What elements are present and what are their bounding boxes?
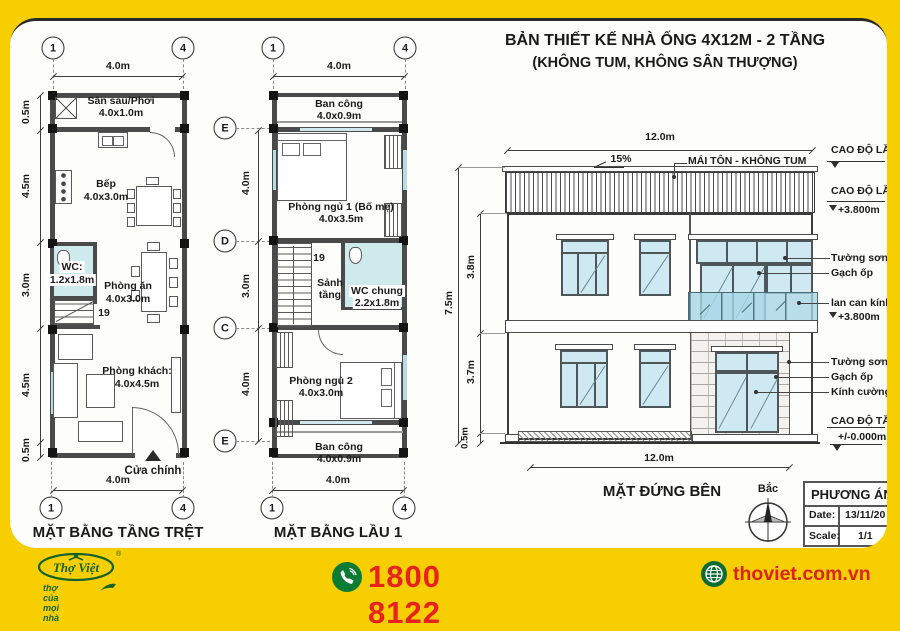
- extension-line: [480, 213, 507, 214]
- scale-value: 1/1: [858, 530, 873, 542]
- window-mullion: [790, 266, 792, 292]
- room-name: Sân sau/Phơi: [88, 95, 155, 107]
- roof-callout: MÁI TÔN - KHÔNG TUM: [688, 155, 806, 167]
- dimension-label: 3.8m: [465, 255, 477, 279]
- column: [48, 124, 57, 133]
- plan-title: MẶT BẰNG LẦU 1: [274, 527, 402, 539]
- leader-line: [786, 258, 830, 259]
- room-size: 4.0x3.0m: [299, 387, 343, 399]
- column: [48, 448, 57, 457]
- room-name: Ban công: [315, 441, 363, 453]
- level-label: CAO ĐỘ TẦNG TRỆT: [831, 415, 900, 427]
- material-callout: Kính cường lực: [831, 386, 900, 398]
- dimension-label: 4.5m: [20, 174, 32, 198]
- level-value: +3.800m: [838, 311, 880, 323]
- chair: [146, 177, 159, 185]
- dimension-line: [507, 150, 813, 151]
- chair: [147, 242, 160, 251]
- window-mullion: [576, 363, 578, 406]
- extension-line: [480, 433, 505, 434]
- material-callout: Gạch ốp: [831, 267, 873, 279]
- dimension-label: 4.0m: [327, 60, 351, 72]
- column: [269, 448, 278, 457]
- column: [399, 91, 408, 100]
- room-name: Sảnh tầng: [311, 277, 349, 301]
- window-mullion: [595, 253, 597, 295]
- dimension-line: [40, 95, 41, 458]
- title-block-line: [803, 525, 900, 527]
- toilet: [349, 247, 362, 264]
- level-symbol: [829, 205, 837, 211]
- chair: [169, 258, 178, 269]
- brand-tagline: thợ của mọi nhà: [43, 583, 59, 623]
- date-value: 13/11/20: [845, 509, 885, 521]
- chair: [131, 266, 140, 277]
- base-step: [505, 434, 519, 442]
- column: [48, 325, 57, 334]
- window: [639, 350, 671, 408]
- column: [399, 448, 408, 457]
- kitchen-sink: [98, 132, 128, 148]
- dimension-label: 3.7m: [465, 360, 477, 384]
- room-name: WC chung: [349, 285, 405, 297]
- wall: [93, 242, 97, 304]
- balcony-rail-line: [276, 431, 403, 433]
- dimension-line: [258, 130, 259, 442]
- column: [180, 239, 189, 248]
- bed: [340, 362, 402, 419]
- dimension-label: 0.5m: [20, 100, 32, 124]
- title-block-line: [803, 505, 900, 507]
- elevation-title: MẶT ĐỨNG BÊN: [603, 486, 721, 498]
- extension-line: [480, 333, 505, 334]
- leader-line: [674, 163, 687, 164]
- window-mullion: [562, 252, 608, 254]
- stair-count-label: 19: [313, 252, 325, 264]
- sheet-title-line2: (KHÔNG TUM, KHÔNG SÂN THƯỢNG): [532, 57, 797, 69]
- grid-line: [236, 328, 270, 329]
- dimension-line: [53, 490, 183, 491]
- leader-line: [757, 392, 829, 393]
- chair: [169, 277, 178, 288]
- corrugated-roof: [505, 172, 815, 213]
- grid-bubble: 4: [393, 497, 416, 520]
- window: [561, 240, 609, 296]
- level-label: CAO ĐỘ LẦU 2: [831, 144, 900, 156]
- level-value: +3.800m: [838, 204, 880, 216]
- date-label: Date:: [809, 509, 835, 521]
- grid-bubble: 1: [40, 497, 63, 520]
- wardrobe: [384, 135, 402, 169]
- column: [399, 418, 408, 427]
- room-name: WC:: [60, 261, 85, 273]
- grid-bubble: E: [214, 430, 237, 453]
- grid-bubble: E: [214, 117, 237, 140]
- chair: [127, 189, 135, 199]
- room-size: 4.0x3.5m: [319, 213, 363, 225]
- window-in-wall: [273, 150, 277, 190]
- thoviet-logo: Thợ Việt ®: [34, 547, 124, 583]
- room-name: Phòng ngủ 1 (Bố mẹ): [288, 201, 394, 213]
- grid-line: [236, 128, 270, 129]
- grid-bubble: D: [214, 230, 237, 253]
- room-size: 4.0x3.0m: [106, 293, 150, 305]
- sofa: [53, 363, 78, 418]
- door-mullion: [746, 354, 748, 370]
- dimension-line: [530, 467, 790, 468]
- dining-table: [136, 186, 172, 226]
- window-in-wall: [300, 128, 372, 132]
- dimension-label: 0.5m: [20, 438, 32, 462]
- globe-icon: [701, 561, 727, 587]
- brand-text: Thợ Việt: [53, 560, 100, 575]
- extension-line: [458, 167, 505, 168]
- ground-line: [500, 442, 820, 444]
- room-size: 4.0x4.5m: [115, 378, 159, 390]
- room-size: 4.0x0.9m: [317, 110, 361, 122]
- stair-arrow: [293, 246, 294, 324]
- dimension-line: [272, 490, 404, 491]
- door-leaf: [132, 407, 133, 453]
- leader-line: [777, 377, 829, 378]
- column: [180, 124, 189, 133]
- registered-mark: ®: [116, 550, 122, 558]
- room-name: Bếp: [96, 178, 116, 190]
- grid-bubble: 4: [394, 37, 417, 60]
- leader-dot: [754, 390, 758, 394]
- transom-band: [696, 240, 813, 264]
- window-in-wall: [300, 421, 372, 425]
- column: [269, 124, 278, 133]
- leader-dot: [797, 301, 801, 305]
- dimension-label: 4.0m: [326, 474, 350, 486]
- room-size: 2.2x1.8m: [353, 297, 401, 309]
- column: [180, 325, 189, 334]
- room-size: 4.0x0.9m: [317, 453, 361, 465]
- room-name: Phòng ăn: [104, 280, 152, 292]
- material-callout: Gạch ốp: [831, 371, 873, 383]
- leader-dot: [774, 375, 778, 379]
- coffee-table: [86, 374, 115, 408]
- room-name: Phòng khách:: [102, 365, 171, 377]
- leader-line: [790, 362, 829, 363]
- slope-line: [594, 167, 624, 168]
- room-name: Phòng ngủ 2: [289, 375, 353, 387]
- sofa: [78, 421, 123, 442]
- door-mullion: [746, 374, 748, 431]
- dimension-label: 12.0m: [645, 131, 675, 143]
- level-line: [827, 201, 885, 202]
- wall: [50, 325, 100, 329]
- room-size: 1.2x1.8m: [48, 274, 96, 286]
- grid-bubble: 1: [262, 37, 285, 60]
- wall: [272, 93, 407, 97]
- dimension-line: [458, 167, 459, 443]
- wardrobe: [275, 400, 293, 437]
- stairs: [277, 243, 312, 327]
- chair: [169, 296, 178, 307]
- dimension-label: 4.5m: [20, 373, 32, 397]
- level-symbol: [833, 445, 841, 451]
- window-mullion: [640, 252, 670, 254]
- sheet-title-line1: BẢN THIẾT KẾ NHÀ ỐNG 4X12M - 2 TẦNG: [505, 35, 825, 47]
- column: [399, 124, 408, 133]
- window-in-wall: [403, 355, 407, 400]
- wall: [402, 93, 407, 458]
- window-mullion: [726, 242, 728, 262]
- grid-bubble: 4: [172, 37, 195, 60]
- floor-slab: [505, 320, 818, 333]
- dimension-label: 4.0m: [106, 60, 130, 72]
- wall: [50, 453, 135, 458]
- window-mullion: [640, 362, 670, 364]
- compass-icon: [744, 497, 792, 543]
- roof-slope-label: 15%: [610, 153, 631, 165]
- column: [399, 323, 408, 332]
- compass-north-label: Bắc: [758, 483, 778, 495]
- chair: [147, 314, 160, 323]
- dimension-label: 0.5m: [460, 427, 471, 449]
- plan-title: MẶT BẰNG TẦNG TRỆT: [33, 527, 204, 539]
- wall: [182, 93, 187, 458]
- material-callout: Tường sơn: [831, 356, 888, 368]
- website-url: thoviet.com.vn: [733, 562, 871, 586]
- tagline-leaf-icon: [99, 580, 117, 593]
- grid-line: [404, 462, 405, 498]
- leader-dot: [787, 360, 791, 364]
- level-symbol: [831, 162, 839, 168]
- leader-line: [800, 303, 829, 304]
- dimension-line: [480, 213, 481, 443]
- grid-bubble: 1: [42, 37, 65, 60]
- base-step: [692, 434, 818, 442]
- laundry-hatch-box: [55, 97, 77, 119]
- grid-line: [272, 462, 273, 498]
- grid-line: [236, 441, 270, 442]
- level-value: +/-0.000m: [838, 431, 886, 443]
- foundation-hatch: [518, 431, 692, 442]
- dimension-label: 4.0m: [240, 372, 252, 396]
- chair: [127, 203, 135, 213]
- wardrobe: [275, 332, 293, 368]
- chair: [127, 217, 135, 227]
- entrance-marker: [145, 450, 161, 461]
- room-size: 4.0x3.0m: [84, 191, 128, 203]
- dimension-label: 7.5m: [443, 291, 455, 315]
- stair-count-label: 19: [98, 307, 110, 319]
- window-mullion: [561, 362, 607, 364]
- level-line: [827, 427, 885, 428]
- dimension-label: 3.0m: [20, 273, 32, 297]
- phone-icon: [332, 562, 362, 592]
- dimension-line: [53, 76, 183, 77]
- dimension-label: 3.0m: [240, 274, 252, 298]
- column: [180, 448, 189, 457]
- dimension-label: 12.0m: [644, 452, 674, 464]
- column: [180, 91, 189, 100]
- grid-line: [236, 241, 270, 242]
- leader-dot: [672, 175, 676, 179]
- bed: [277, 133, 347, 201]
- chair: [173, 217, 181, 227]
- room-size: 4.0x1.0m: [99, 107, 143, 119]
- tv-cabinet: [171, 357, 181, 413]
- room-name: Ban công: [315, 98, 363, 110]
- grid-bubble: 1: [261, 497, 284, 520]
- chair: [173, 203, 181, 213]
- scale-label: Scale:: [809, 530, 840, 542]
- leader-dot: [757, 271, 761, 275]
- material-callout: Tường sơn: [831, 252, 888, 264]
- column: [269, 91, 278, 100]
- chair: [173, 189, 181, 199]
- window-mullion: [577, 253, 579, 295]
- dimension-label: 4.0m: [240, 171, 252, 195]
- main-door-label: Cửa chính: [125, 465, 182, 477]
- grid-bubble: 4: [172, 497, 195, 520]
- window-mullion: [756, 242, 758, 262]
- title-block-title: PHƯƠNG ÁN: [811, 487, 893, 502]
- leader-dot: [783, 256, 787, 260]
- armchair: [58, 334, 93, 360]
- stove: [55, 170, 72, 204]
- leader-line: [760, 273, 829, 274]
- grid-line: [183, 462, 184, 498]
- dimension-line: [273, 76, 405, 77]
- level-symbol: [829, 312, 837, 318]
- window: [639, 240, 671, 296]
- grid-bubble: C: [214, 317, 237, 340]
- window-mullion: [594, 363, 596, 406]
- hotline-number: 1800 8122: [368, 559, 441, 631]
- level-label: CAO ĐỘ LẦU 1: [831, 185, 900, 197]
- material-callout: lan can kính: [831, 297, 892, 309]
- window-in-wall: [403, 150, 407, 190]
